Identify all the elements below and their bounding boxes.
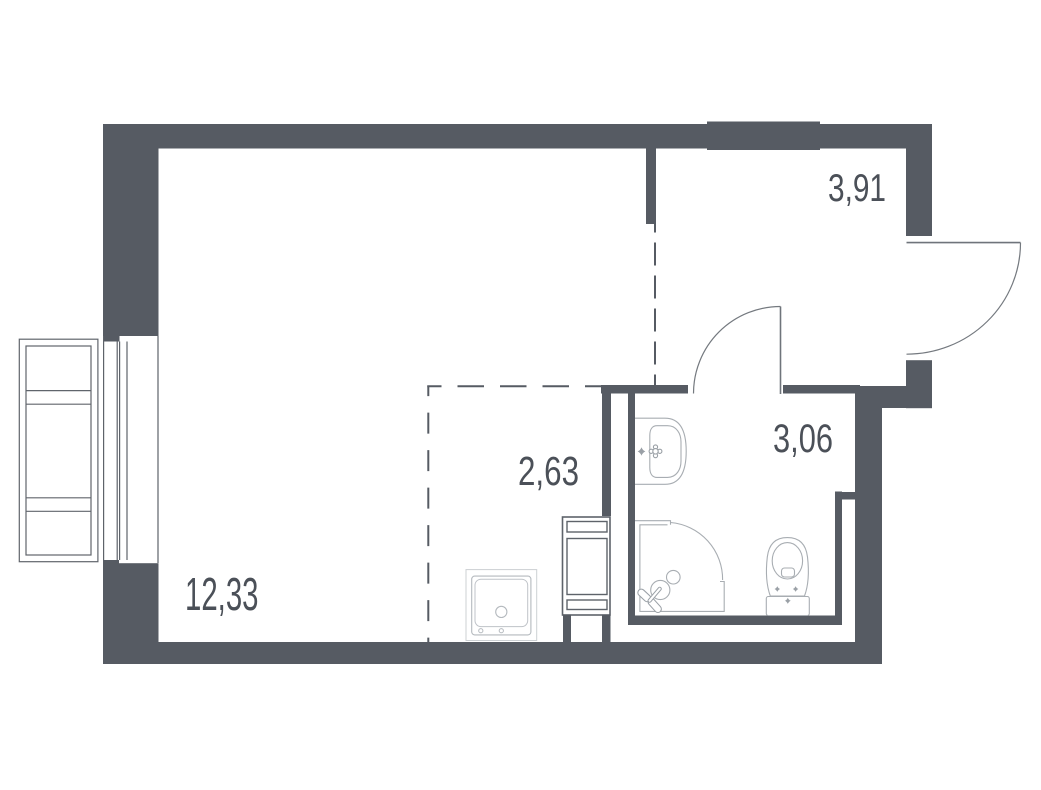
svg-text:12,33: 12,33 bbox=[185, 568, 259, 620]
svg-text:2,63: 2,63 bbox=[518, 448, 579, 494]
svg-text:3,91: 3,91 bbox=[828, 167, 886, 210]
svg-text:3,06: 3,06 bbox=[773, 417, 833, 461]
